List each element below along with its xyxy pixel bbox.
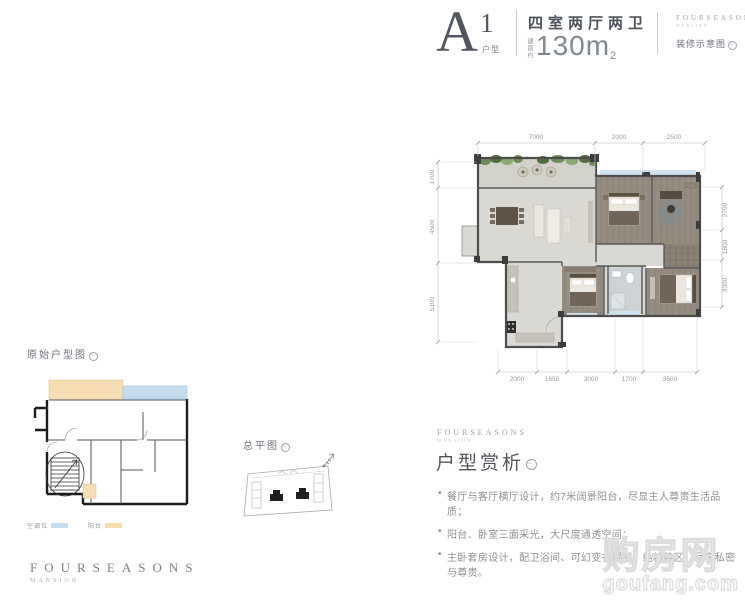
- area-value: 130m: [536, 30, 610, 62]
- detail-icon: ~: [89, 352, 98, 361]
- plan-suffix-label: 户型: [482, 44, 500, 55]
- site-plan-drawing: [240, 450, 340, 532]
- dim-left-2: 4500: [430, 219, 436, 234]
- analysis-title: 户型赏析~: [436, 448, 537, 475]
- gift-area-small: [83, 484, 96, 498]
- plan-letter: A: [436, 0, 478, 64]
- dim-left-3: 5100: [430, 296, 436, 311]
- brand-name: FOURSEASONS: [676, 14, 745, 22]
- plan-number: 1: [480, 8, 494, 39]
- building-outline: [244, 466, 332, 516]
- original-plan-legend: 空调位 阳台: [27, 521, 122, 530]
- brand-logo-top: FOURSEASONS MANSION: [676, 14, 745, 28]
- entry-porch: [462, 226, 478, 256]
- brand-name: FOURSEASONS: [30, 560, 199, 576]
- dim-bottom-5: 3600: [663, 376, 678, 383]
- render-note-label: 装修示意图~: [676, 37, 737, 50]
- brand-name: FOURSEASONS: [437, 428, 527, 437]
- area-figure: 建面约 130m 2: [525, 30, 616, 62]
- dim-right-1: 2700: [722, 202, 729, 217]
- brand-logo-footer: FOURSEASONS MANSION: [30, 560, 199, 584]
- plan-code: A 1 户型: [436, 6, 508, 62]
- header-divider-1: [516, 10, 517, 56]
- floorplan-brochure-page: A 1 户型 四室两厅两卫 建面约 130m 2 FOURSEASONS MAN…: [0, 0, 745, 600]
- stairwell: [46, 452, 84, 496]
- dim-top-1: 7000: [529, 134, 544, 141]
- dim-top-2: 2000: [612, 134, 627, 141]
- legend-swatch-blue: [51, 523, 68, 528]
- original-plan-label: 原始户型图~: [27, 346, 98, 361]
- orig-outer-walls: [35, 399, 187, 504]
- detail-icon: ~: [526, 459, 537, 470]
- legend-item-blue: 空调位: [27, 521, 68, 530]
- sideboard: [534, 205, 544, 237]
- dim-bottom-4: 1700: [622, 376, 637, 383]
- watermark-site-name: 购房网: [602, 538, 739, 574]
- brand-logo-analysis: FOURSEASONS MANSION: [437, 428, 527, 443]
- brand-subname: MANSION: [30, 578, 199, 584]
- hallway: [562, 244, 664, 266]
- dim-bottom-3: 3000: [584, 376, 599, 383]
- area-superscript: 2: [610, 50, 616, 62]
- main-floorplan-render: 7000 2000 2500 1700 4500 5100 2700 1800 …: [430, 125, 730, 385]
- dim-bottom-2: 1650: [545, 376, 560, 383]
- bed-top-bedroom: [603, 193, 645, 225]
- legend-swatch-orange: [105, 523, 122, 528]
- dim-bottom-1: 2000: [510, 376, 525, 383]
- analysis-bullet: 餐厅与客厅横厅设计，约7米阔景阳台，尽显主人尊贵生活品质；: [438, 488, 738, 518]
- dim-right-3: 3300: [722, 277, 729, 292]
- header-divider-2: [657, 12, 658, 54]
- watermark: 购房网 goufang.com: [602, 538, 739, 594]
- ac-strip-highlight: [123, 386, 187, 399]
- area-prefix-label: 建面约: [525, 38, 534, 59]
- window-bottom-2: [610, 311, 640, 315]
- tv-cabinet: [588, 201, 593, 243]
- detail-icon: ~: [728, 41, 737, 50]
- dim-left-1: 1700: [430, 169, 436, 184]
- original-floorplan-drawing: [25, 372, 197, 520]
- dim-top-3: 2500: [667, 134, 682, 141]
- brand-subname: MANSION: [437, 438, 527, 443]
- watermark-site-url: goufang.com: [602, 574, 739, 594]
- dim-right-2: 1800: [722, 239, 729, 254]
- legend-item-orange: 阳台: [88, 521, 122, 530]
- brand-subname: MANSION: [676, 23, 745, 28]
- north-arrow-icon: [323, 454, 334, 467]
- gift-balcony-highlight: [49, 380, 123, 400]
